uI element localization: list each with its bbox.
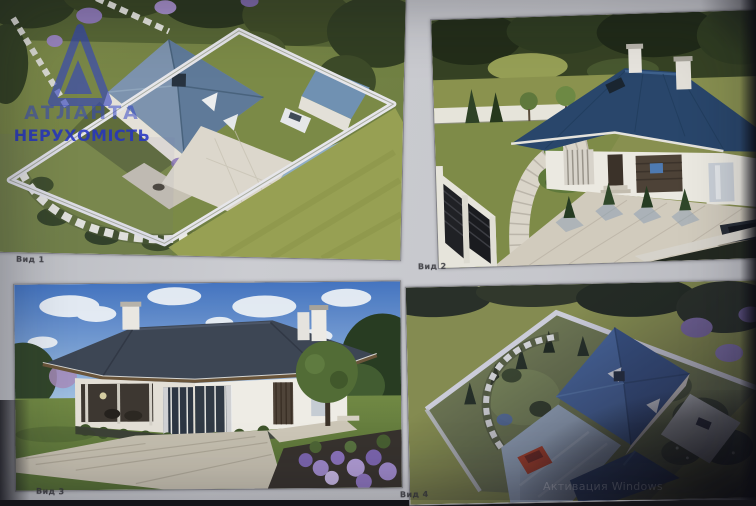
photo-edge-shadow-right [740,0,756,500]
render-view-3-image [13,280,403,491]
photo-corner-shadow-bottom-right [520,390,756,500]
view-3-caption: Вид 3 [36,487,65,496]
watermark-brand-subtitle: НЕРУХОМІСТЬ [8,126,156,145]
view-1-caption: Вид 1 [16,255,45,264]
photo-corner-shadow-bottom-left [0,400,30,500]
watermark-brand-name: АТЛАНТА [8,102,156,124]
exterior-render-3 [14,281,402,490]
view-4-caption: Вид 4 [400,490,429,499]
view-2-caption: Вид 2 [418,262,447,271]
atlanta-triangle-logo-icon [48,24,112,108]
agency-watermark: АТЛАНТА НЕРУХОМІСТЬ [8,18,156,150]
